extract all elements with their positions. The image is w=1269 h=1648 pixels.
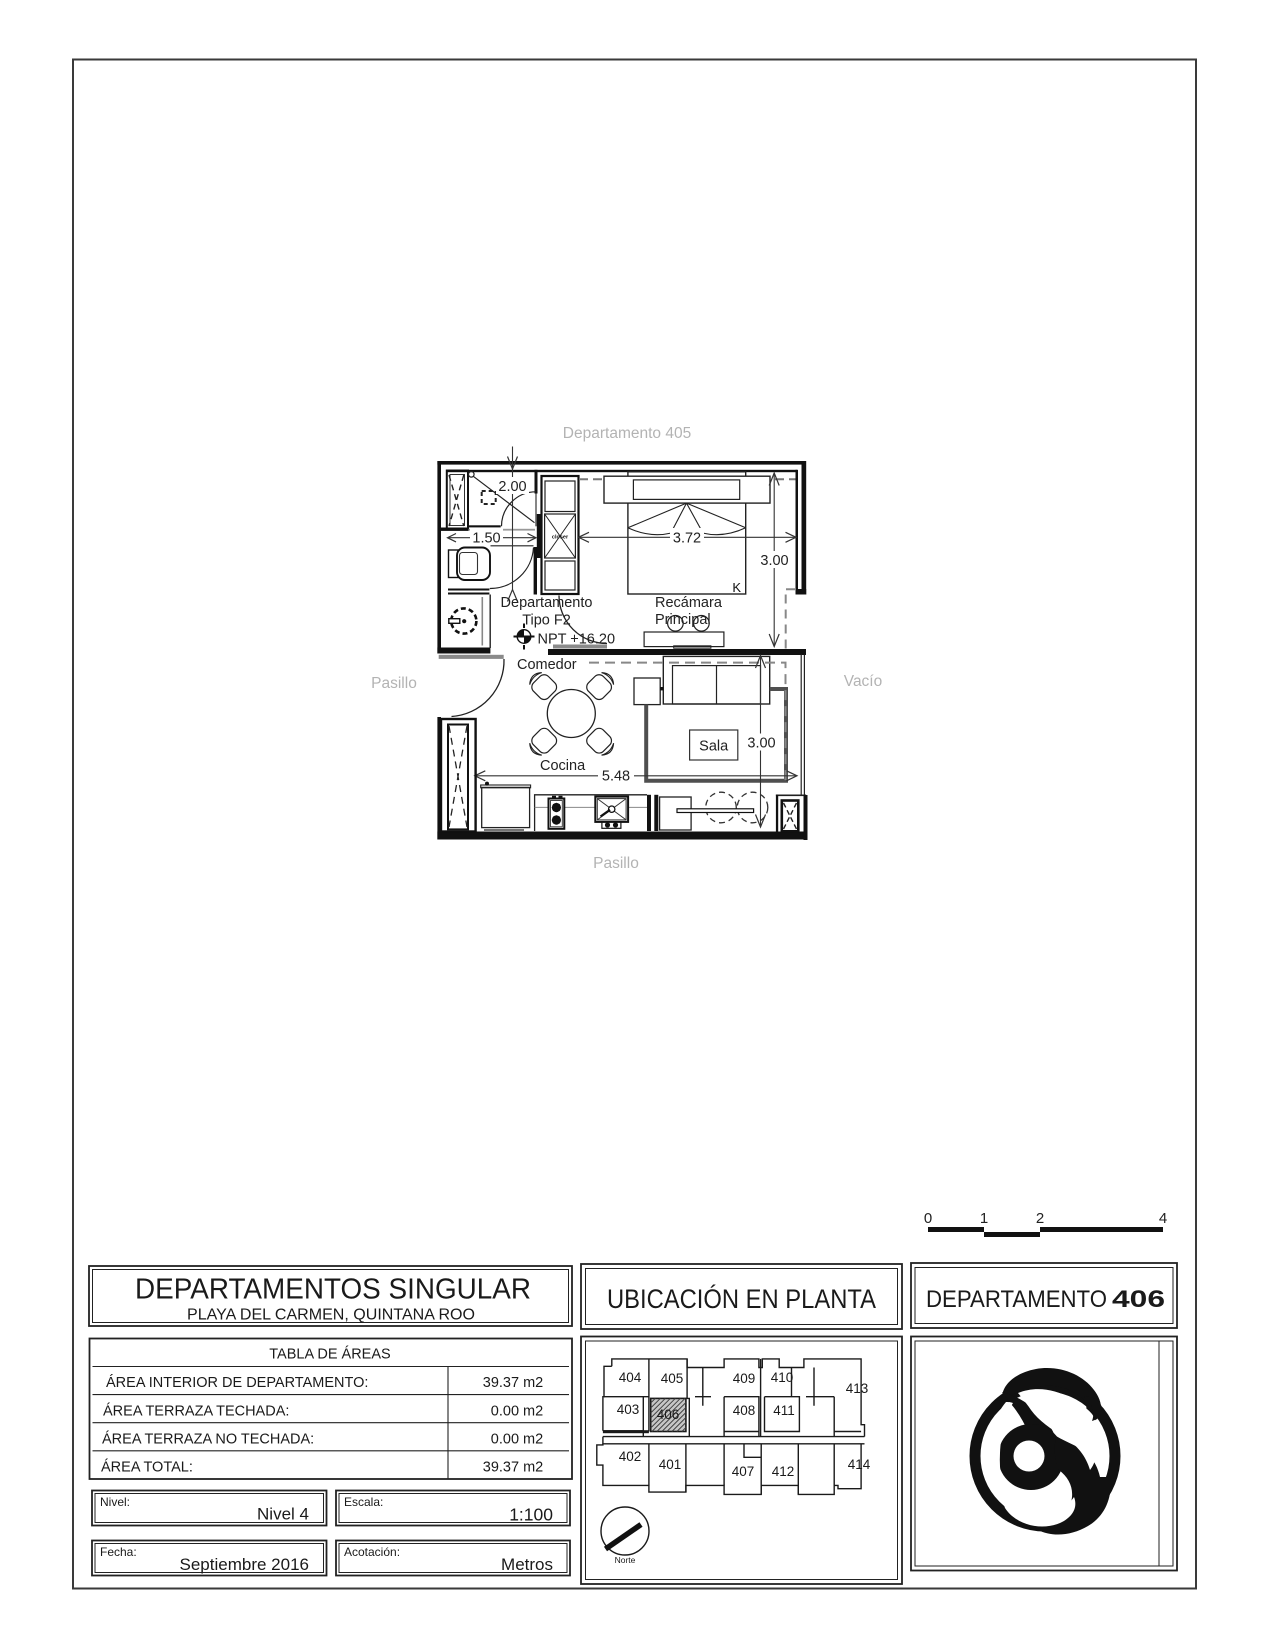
svg-text:4: 4 — [1159, 1210, 1167, 1227]
svg-text:Cocina: Cocina — [540, 758, 586, 774]
svg-text:Nivel 4: Nivel 4 — [257, 1505, 309, 1524]
svg-text:0.00 m2: 0.00 m2 — [491, 1432, 543, 1448]
svg-text:DEPARTAMENTOS SINGULAR: DEPARTAMENTOS SINGULAR — [135, 1274, 531, 1306]
svg-text:Escala:: Escala: — [344, 1495, 383, 1509]
svg-text:409: 409 — [733, 1371, 756, 1386]
svg-text:412: 412 — [772, 1464, 795, 1479]
svg-text:ÁREA TERRAZA TECHADA:: ÁREA TERRAZA TECHADA: — [103, 1403, 289, 1420]
svg-text:3.00: 3.00 — [760, 553, 788, 569]
svg-text:1:100: 1:100 — [509, 1505, 553, 1525]
svg-text:403: 403 — [617, 1402, 640, 1417]
svg-text:Sala: Sala — [699, 739, 729, 755]
svg-text:0: 0 — [924, 1210, 932, 1227]
svg-text:39.37 m2: 39.37 m2 — [483, 1460, 543, 1476]
svg-text:411: 411 — [773, 1403, 795, 1418]
svg-text:Norte: Norte — [615, 1555, 636, 1565]
svg-text:ÁREA TERRAZA NO TECHADA:: ÁREA TERRAZA NO TECHADA: — [102, 1431, 314, 1448]
svg-text:407: 407 — [732, 1464, 755, 1479]
svg-text:Metros: Metros — [501, 1555, 553, 1574]
svg-text:K: K — [732, 580, 741, 595]
svg-text:Departamento 405: Departamento 405 — [563, 425, 691, 442]
svg-text:406: 406 — [1112, 1286, 1165, 1313]
svg-text:ÁREA TOTAL:: ÁREA TOTAL: — [101, 1459, 193, 1476]
svg-text:Pasillo: Pasillo — [593, 855, 639, 872]
svg-text:TABLA DE ÁREAS: TABLA DE ÁREAS — [269, 1346, 390, 1363]
svg-text:401: 401 — [659, 1457, 682, 1472]
svg-text:414: 414 — [848, 1457, 871, 1472]
svg-text:Departamento: Departamento — [501, 595, 593, 611]
svg-text:Nivel:: Nivel: — [100, 1495, 130, 1509]
svg-text:closer: closer — [552, 535, 569, 541]
svg-text:3.00: 3.00 — [747, 736, 775, 752]
svg-text:Recámara: Recámara — [655, 595, 723, 611]
svg-text:3.72: 3.72 — [673, 531, 701, 547]
svg-text:406: 406 — [657, 1407, 680, 1422]
svg-text:Tipo F2: Tipo F2 — [522, 613, 571, 629]
svg-text:404: 404 — [619, 1370, 642, 1385]
svg-text:2: 2 — [1036, 1210, 1044, 1227]
svg-text:1: 1 — [980, 1210, 988, 1227]
svg-text:PLAYA DEL CARMEN, QUINTANA ROO: PLAYA DEL CARMEN, QUINTANA ROO — [187, 1307, 475, 1324]
svg-text:405: 405 — [661, 1371, 684, 1386]
svg-text:5.48: 5.48 — [602, 769, 630, 785]
svg-text:Vacío: Vacío — [844, 673, 883, 690]
svg-text:408: 408 — [733, 1403, 756, 1418]
svg-text:Acotación:: Acotación: — [344, 1545, 400, 1559]
svg-text:413: 413 — [846, 1381, 869, 1396]
svg-text:2.00: 2.00 — [498, 479, 526, 495]
svg-text:Pasillo: Pasillo — [371, 675, 417, 692]
svg-text:Comedor: Comedor — [517, 657, 577, 673]
svg-text:Principal: Principal — [655, 612, 711, 628]
svg-text:ÁREA INTERIOR DE DEPARTAMENTO:: ÁREA INTERIOR DE DEPARTAMENTO: — [106, 1374, 368, 1391]
svg-text:402: 402 — [619, 1449, 642, 1464]
svg-text:1.50: 1.50 — [472, 531, 500, 547]
svg-text:Fecha:: Fecha: — [100, 1545, 137, 1559]
svg-text:UBICACIÓN EN PLANTA: UBICACIÓN EN PLANTA — [607, 1283, 876, 1314]
svg-text:DEPARTAMENTO: DEPARTAMENTO — [926, 1286, 1107, 1313]
svg-text:Septiembre 2016: Septiembre 2016 — [180, 1555, 309, 1574]
svg-text:NPT +16.20: NPT +16.20 — [538, 632, 616, 648]
svg-text:0.00 m2: 0.00 m2 — [491, 1404, 543, 1420]
svg-text:39.37 m2: 39.37 m2 — [483, 1375, 543, 1391]
svg-text:410: 410 — [771, 1370, 794, 1385]
